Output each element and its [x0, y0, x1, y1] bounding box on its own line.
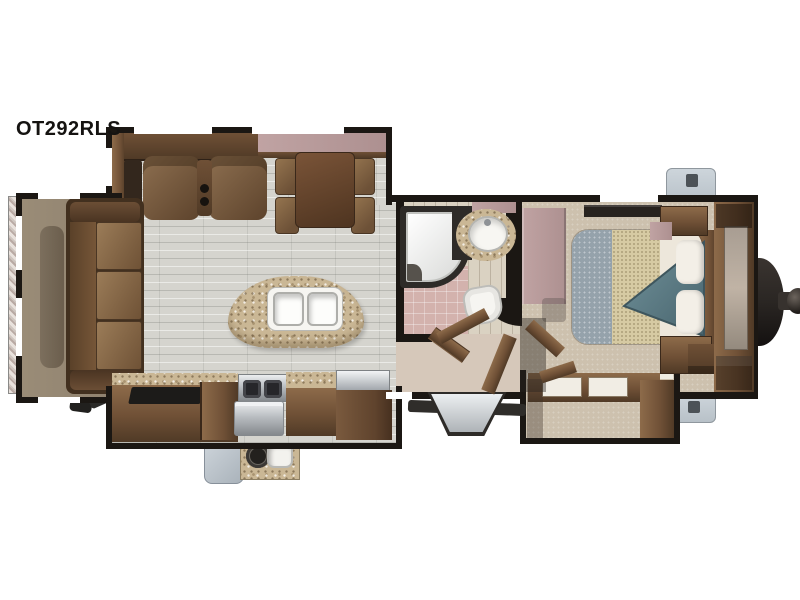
sofa-cushion: [96, 321, 142, 370]
pillow: [676, 240, 704, 284]
cabinet-hutch: [200, 382, 238, 440]
mirrored-wardrobe: [522, 208, 566, 304]
range-burner: [264, 380, 282, 398]
bedside-cabinet: [650, 222, 672, 240]
oven: [234, 401, 284, 436]
sofa-backrest: [70, 222, 96, 370]
dinette-valance: [258, 133, 386, 154]
island-sink-bowl: [307, 292, 338, 326]
wardrobe-slide-side-panel: [640, 380, 674, 438]
front-wardrobe-bottom-cubby: [716, 356, 752, 390]
refrigerator-top: [336, 370, 390, 392]
window: [134, 127, 212, 134]
model-label: OT292RLS: [16, 118, 121, 141]
pillow: [676, 290, 704, 334]
window: [600, 195, 658, 202]
sofa-arm-top: [70, 202, 140, 222]
utility-box-top-latch: [686, 174, 698, 187]
dresser-panel: [588, 377, 628, 397]
theater-seat-left: [143, 156, 200, 220]
range-burner: [243, 380, 261, 398]
shower-seat: [407, 264, 422, 281]
window: [38, 193, 80, 199]
nightstand-drawers: [688, 344, 716, 374]
island-sink-bowl: [273, 292, 304, 326]
theater-seat-right: [209, 156, 267, 220]
utility-box-bottom-latch: [688, 401, 700, 413]
window: [16, 216, 22, 270]
sofa-cushion: [96, 271, 142, 320]
bed-quilt-foot: [572, 230, 612, 344]
dinette-table: [295, 152, 355, 228]
bedroom-overhead-cabinet: [584, 205, 662, 217]
floorplan-canvas: OT292RLS: [0, 0, 800, 600]
hitch-coupler-ball: [787, 288, 800, 314]
kitchen-base-cabinet: [286, 388, 340, 436]
window: [386, 392, 412, 399]
tv: [128, 387, 204, 404]
cupholder: [200, 197, 209, 206]
vanity-faucet: [484, 219, 491, 226]
window: [16, 298, 22, 356]
window: [38, 397, 80, 403]
front-wardrobe-top-cubby: [716, 204, 752, 228]
sofa-slide-trim: [40, 226, 64, 368]
front-wardrobe-mirror-panel: [724, 226, 748, 350]
cupholder: [200, 184, 209, 193]
window: [106, 148, 112, 186]
refrigerator-body: [336, 390, 392, 440]
sofa-cushion: [96, 222, 142, 270]
window: [252, 127, 344, 134]
